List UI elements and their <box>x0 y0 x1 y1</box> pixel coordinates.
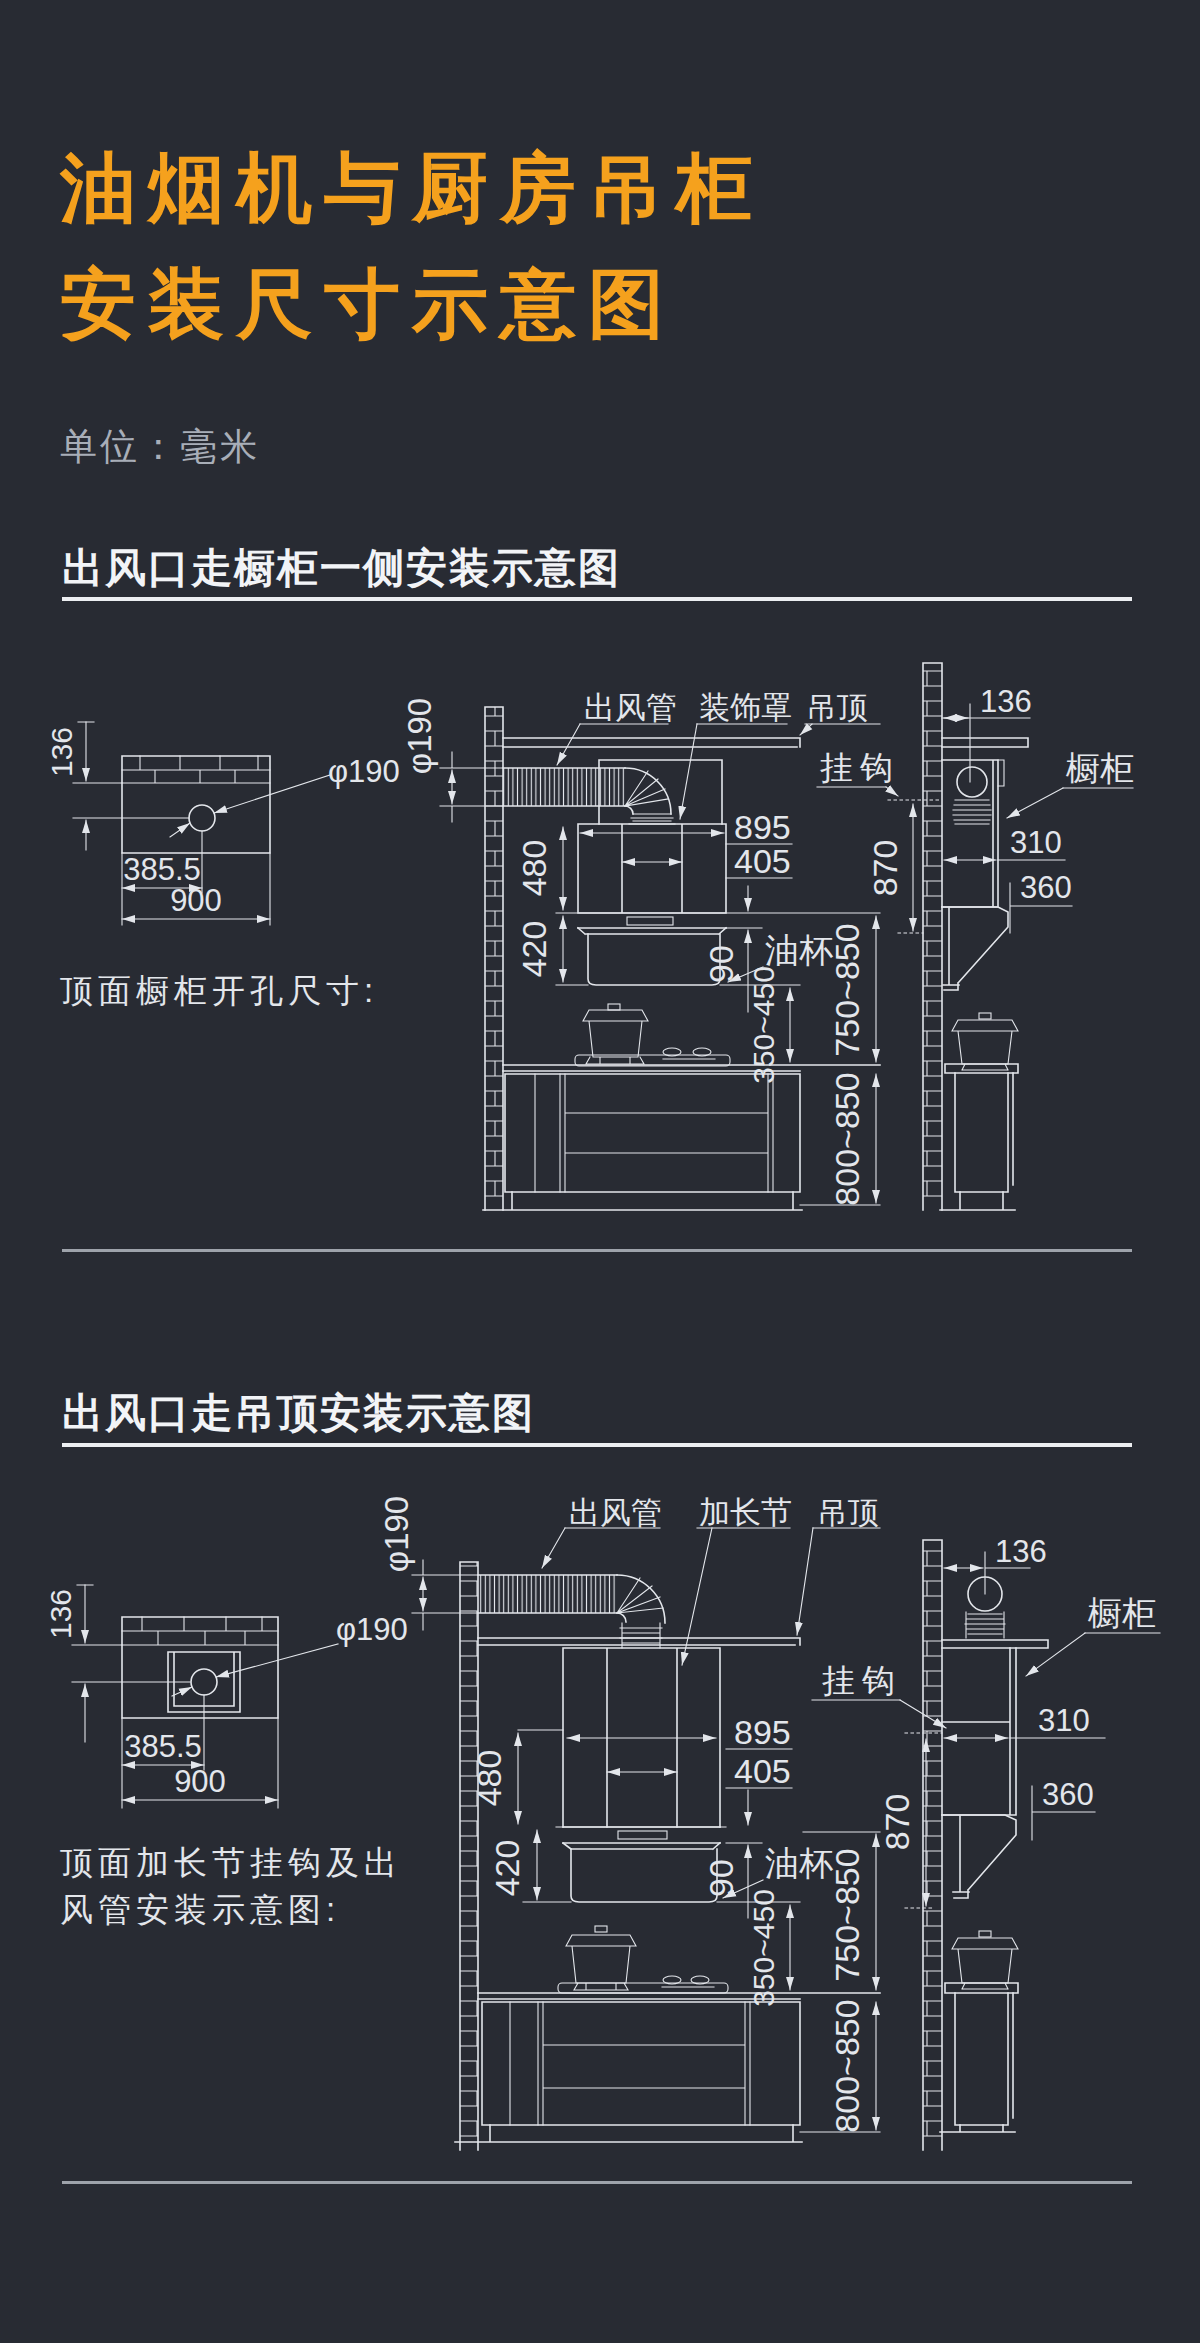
section2-heading: 出风口走吊顶安装示意图 <box>62 1386 535 1441</box>
s2-side-wall-offset: 136 <box>995 1534 1047 1569</box>
s2-extension-label: 加长节 <box>699 1495 792 1530</box>
s2-cutout-hole-dia: φ190 <box>336 1612 408 1647</box>
section-divider <box>62 1249 1132 1252</box>
s1-cutout-wall-offset: 136 <box>45 727 78 777</box>
s1-ceiling-label: 吊顶 <box>806 690 868 725</box>
s1-hook-to-bottom: 870 <box>866 840 904 897</box>
s2-ceiling-label: 吊顶 <box>817 1495 879 1530</box>
section2-caption-line1: 顶面加长节挂钩及出 <box>60 1840 402 1887</box>
s1-duct-dia: φ190 <box>401 698 438 774</box>
page: { "page": { "title_line1": "油烟机与厨房吊柜", "… <box>0 0 1200 2343</box>
s1-cutout-hole-dia: φ190 <box>328 754 400 789</box>
s2-cutout-wall-offset: 136 <box>44 1589 77 1639</box>
s2-oilcup-label: 油杯 <box>765 1844 833 1882</box>
section2-heading-rule <box>62 1443 1132 1447</box>
s2-cutout-width: 900 <box>174 1764 226 1799</box>
s2-lower-height: 420 <box>488 1840 526 1897</box>
s2-cabinet-label: 橱柜 <box>1087 1594 1156 1632</box>
section1-drawing: φ190 136 385.5 900 吊顶 出风管 装饰罩 φ190 <box>0 640 1200 1260</box>
s2-upper-height: 480 <box>470 1750 508 1807</box>
s1-hood-width: 895 <box>734 808 791 846</box>
s1-panel-height: 90 <box>702 945 740 983</box>
s1-hood-to-counter: 350~450 <box>747 966 780 1084</box>
s1-cutout-hole-offset: 385.5 <box>123 852 201 887</box>
s2-hook-label: 挂钩 <box>822 1662 902 1699</box>
s1-cover-label: 装饰罩 <box>699 690 792 725</box>
page-title-line1: 油烟机与厨房吊柜 <box>60 150 764 226</box>
unit-label: 单位：毫米 <box>60 422 260 472</box>
page-title-line2: 安装尺寸示意图 <box>60 266 676 342</box>
s1-counter-height: 800~850 <box>828 1072 866 1205</box>
s1-oilcup-label: 油杯 <box>765 931 833 969</box>
s1-outlet-width: 405 <box>734 842 791 880</box>
section1-heading: 出风口走橱柜一侧安装示意图 <box>62 541 621 596</box>
s1-cutout-view: φ190 136 385.5 900 <box>45 722 400 925</box>
s2-hood-depth: 360 <box>1042 1777 1094 1812</box>
s1-lower-height: 420 <box>515 921 553 978</box>
s1-elevation-view: 吊顶 出风管 装饰罩 φ190 895 405 480 420 <box>401 690 880 1210</box>
s2-hook-to-bottom: 870 <box>878 1794 916 1851</box>
s2-cutout-hole-offset: 385.5 <box>124 1729 202 1764</box>
s2-duct-label: 出风管 <box>569 1495 662 1530</box>
section2-caption-line2: 风管安装示意图: <box>60 1887 402 1934</box>
s1-body-to-counter: 750~850 <box>828 923 866 1056</box>
s2-side-view: 136 310 870 橱柜 360 <box>878 1534 1160 2150</box>
s2-counter-height: 800~850 <box>828 1999 866 2132</box>
s2-duct-dia: φ190 <box>378 1496 415 1572</box>
s2-elevation-view: φ190 出风管 加长节 吊顶 挂钩 895 405 480 <box>378 1495 946 2150</box>
s1-cutout-width: 900 <box>170 883 222 918</box>
s1-upper-height: 480 <box>515 840 553 897</box>
s2-hood-width: 895 <box>734 1713 791 1751</box>
section1-caption: 顶面橱柜开孔尺寸: <box>60 968 378 1015</box>
s2-body-to-counter: 750~850 <box>828 1848 866 1981</box>
bottom-rule <box>62 2181 1132 2184</box>
s1-hook-label: 挂钩 <box>820 749 900 786</box>
s1-duct-label: 出风管 <box>584 690 677 725</box>
s1-side-wall-offset: 136 <box>980 684 1032 719</box>
s1-cabinet-depth: 310 <box>1010 825 1062 860</box>
s2-panel-height: 90 <box>702 1859 740 1897</box>
s2-cabinet-depth: 310 <box>1038 1703 1090 1738</box>
section2-caption: 顶面加长节挂钩及出 风管安装示意图: <box>60 1840 402 1934</box>
section1-heading-rule <box>62 597 1132 601</box>
s2-hood-to-counter: 350~450 <box>747 1889 780 2007</box>
s1-cabinet-label: 橱柜 <box>1065 749 1134 787</box>
s1-hood-depth: 360 <box>1020 870 1072 905</box>
s2-outlet-width: 405 <box>734 1752 791 1790</box>
s2-cutout-view: φ190 136 385.5 900 <box>44 1585 408 1808</box>
